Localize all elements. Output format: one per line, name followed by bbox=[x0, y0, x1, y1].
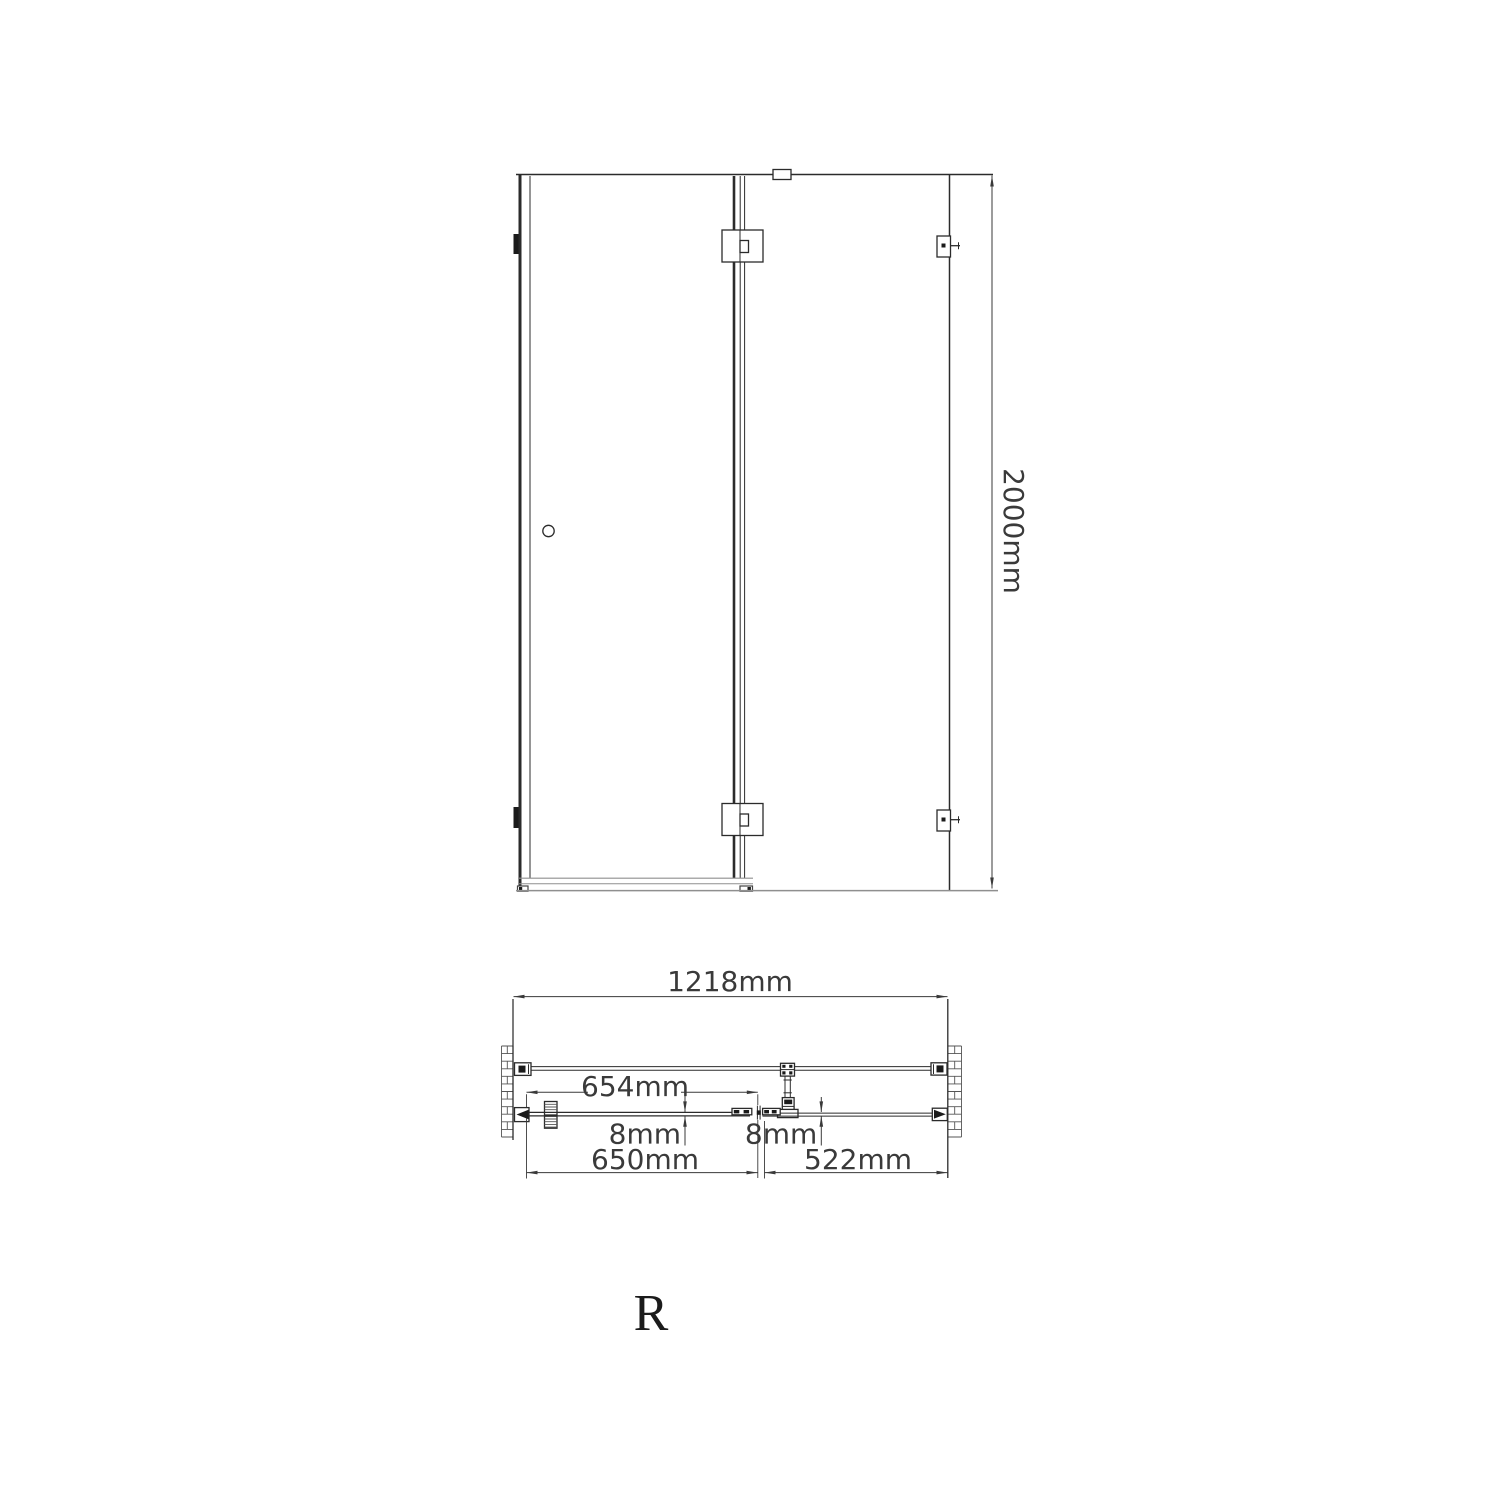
height-dimension-label: 2000mm bbox=[997, 468, 1030, 594]
right-glass-wall-profile bbox=[932, 1108, 947, 1120]
support-bar-left-bracket bbox=[515, 1063, 532, 1076]
door-glass-width-label: 654mm bbox=[581, 1070, 689, 1103]
support-bar-right-bracket bbox=[931, 1063, 947, 1075]
left-wall-bracket-bottom bbox=[514, 807, 519, 828]
top-clamp-bracket bbox=[773, 170, 791, 180]
plan-section-view: 1218mm 654mm 8mm 8mm bbox=[502, 965, 962, 1179]
door-glass-plan bbox=[529, 1112, 750, 1116]
handle-knob-plan bbox=[545, 1102, 558, 1129]
shower-enclosure-drawing: 2000mm bbox=[0, 0, 1500, 1500]
dimension-total-width-1218: 1218mm bbox=[513, 965, 948, 1046]
right-wall-hatch bbox=[948, 1046, 962, 1137]
total-width-label: 1218mm bbox=[667, 965, 793, 998]
right-wall-bracket-top bbox=[937, 236, 960, 257]
front-elevation-view: 2000mm bbox=[514, 170, 1031, 892]
hinge-top bbox=[722, 230, 763, 262]
panel-width-label: 522mm bbox=[804, 1143, 912, 1176]
hinge-bottom bbox=[722, 804, 763, 836]
door-handle-knob bbox=[543, 525, 554, 536]
bottom-sill bbox=[518, 878, 754, 891]
right-wall-bracket-bottom bbox=[937, 810, 960, 831]
technical-drawing-page: 2000mm bbox=[0, 0, 1500, 1500]
left-wall-bracket-top bbox=[514, 234, 519, 254]
orientation-label: R bbox=[634, 1285, 669, 1342]
left-wall-hatch bbox=[502, 1046, 514, 1137]
dimension-height-2000: 2000mm bbox=[990, 176, 1030, 889]
door-width-label: 650mm bbox=[591, 1143, 699, 1176]
